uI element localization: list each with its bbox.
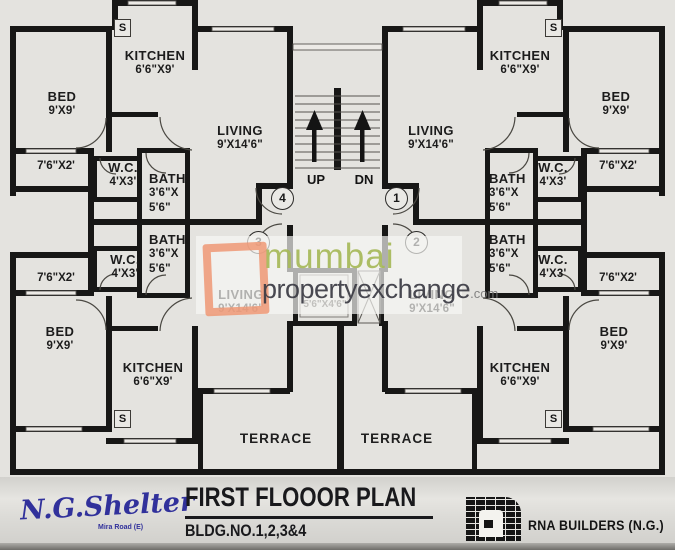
wc-room-label: W.C. 4'X3' [110,253,140,281]
room-name: BED [46,325,75,338]
bed-room-label: BED 9'X9' [46,325,75,353]
watermark-suffix: .com [470,286,498,301]
watermark: mumbai propertyexchange.com [196,236,462,314]
room-dim: 6'6"X9' [123,377,184,389]
room-name: BED [602,90,631,103]
watermark-logo-icon [202,242,269,317]
room-name: KITCHEN [123,361,184,374]
room-name: W.C. [538,161,568,174]
living-room-label: LIVING 9'X14'6" [217,124,263,152]
room-name: KITCHEN [490,361,551,374]
room-name: W.C. [108,161,138,174]
room-name: BATH [489,233,526,246]
footer: N.G.Shelter Mira Road (E) FIRST FLOOOR P… [0,477,675,550]
balcony-dim-label: 7'6"X2' [37,272,75,284]
bed-room-label: BED 9'X9' [600,325,629,353]
title-underline [185,516,433,519]
watermark-brand-bottom: propertyexchange.com [262,274,498,305]
room-dim: 3'6"X [489,188,526,200]
balcony-dim-label: 7'6"X2' [37,160,75,172]
scan-edge-shadow [0,543,675,550]
shaft-marker: S [114,19,131,37]
room-dim: 9'X9' [602,106,631,118]
balcony-dim-label: 7'6"X2' [599,160,637,172]
room-dim: 6'6"X9' [490,65,551,77]
developer-location: Mira Road (E) [98,524,143,531]
builder-logo-dot [484,520,493,528]
room-dim: 9'X9' [600,341,629,353]
kitchen-room-label: KITCHEN 6'6"X9' [490,361,551,389]
bath-room-label: BATH 3'6"X 5'6" [149,233,186,275]
kitchen-room-label: KITCHEN 6'6"X9' [123,361,184,389]
wc-room-label: W.C. 4'X3' [538,253,568,281]
kitchen-room-label: KITCHEN 6'6"X9' [125,49,186,77]
room-name: W.C. [110,253,140,266]
room-dim: 3'6"X [149,188,186,200]
room-dim: 9'X9' [48,106,77,118]
builder-logo-door [479,510,503,537]
kitchen-room-label: KITCHEN 6'6"X9' [490,49,551,77]
terrace-label: TERRACE [240,431,312,446]
room-name: LIVING [217,124,263,137]
flat-number-badge: 1 [385,187,408,210]
bed-room-label: BED 9'X9' [602,90,631,118]
terrace-label: TERRACE [361,431,433,446]
room-dim: 5'6" [149,203,186,215]
shaft-marker: S [114,410,131,428]
room-dim: 6'6"X9' [125,65,186,77]
room-name: LIVING [408,124,454,137]
room-name: BATH [489,172,526,185]
room-name: BATH [149,233,186,246]
shaft-marker: S [545,410,562,428]
bath-room-label: BATH 3'6"X 5'6" [489,233,526,275]
room-dim: 4'X3' [110,269,140,281]
room-name: BATH [149,172,186,185]
floor-plan-scan: BED 9'X9' KITCHEN 6'6"X9' LIVING 9'X14'6… [0,0,675,550]
room-dim: 4'X3' [108,177,138,189]
wc-room-label: W.C. 4'X3' [538,161,568,189]
flat-number-badge: 4 [271,187,294,210]
room-dim: 4'X3' [538,269,568,281]
room-dim: 9'X9' [46,341,75,353]
building-number: BLDG.NO.1,2,3&4 [185,521,306,541]
room-name: W.C. [538,253,568,266]
room-dim: 5'6" [149,264,186,276]
room-name: KITCHEN [125,49,186,62]
plan-title: FIRST FLOOOR PLAN [185,482,416,513]
bed-room-label: BED 9'X9' [48,90,77,118]
room-dim: 9'X14'6" [217,140,263,152]
room-dim: 5'6" [489,203,526,215]
room-dim: 9'X14'6" [408,140,454,152]
developer-logo: N.G.Shelter [19,486,195,526]
bath-room-label: BATH 3'6"X 5'6" [489,172,526,214]
room-name: KITCHEN [490,49,551,62]
balcony-dim-label: 7'6"X2' [599,272,637,284]
bath-room-label: BATH 3'6"X 5'6" [149,172,186,214]
watermark-brand-text: propertyexchange [262,274,470,304]
down-label: DN [355,172,374,187]
room-dim: 4'X3' [538,177,568,189]
up-label: UP [307,172,325,187]
room-name: BED [48,90,77,103]
watermark-brand-top: mumbai [264,237,394,277]
room-dim: 3'6"X [149,249,186,261]
room-dim: 6'6"X9' [490,377,551,389]
room-dim: 3'6"X [489,249,526,261]
room-name: BED [600,325,629,338]
builder-logo-icon [466,497,521,541]
shaft-marker: S [545,19,562,37]
builder-name: RNA BUILDERS (N.G.) [528,518,664,533]
living-room-label: LIVING 9'X14'6" [408,124,454,152]
wc-room-label: W.C. 4'X3' [108,161,138,189]
